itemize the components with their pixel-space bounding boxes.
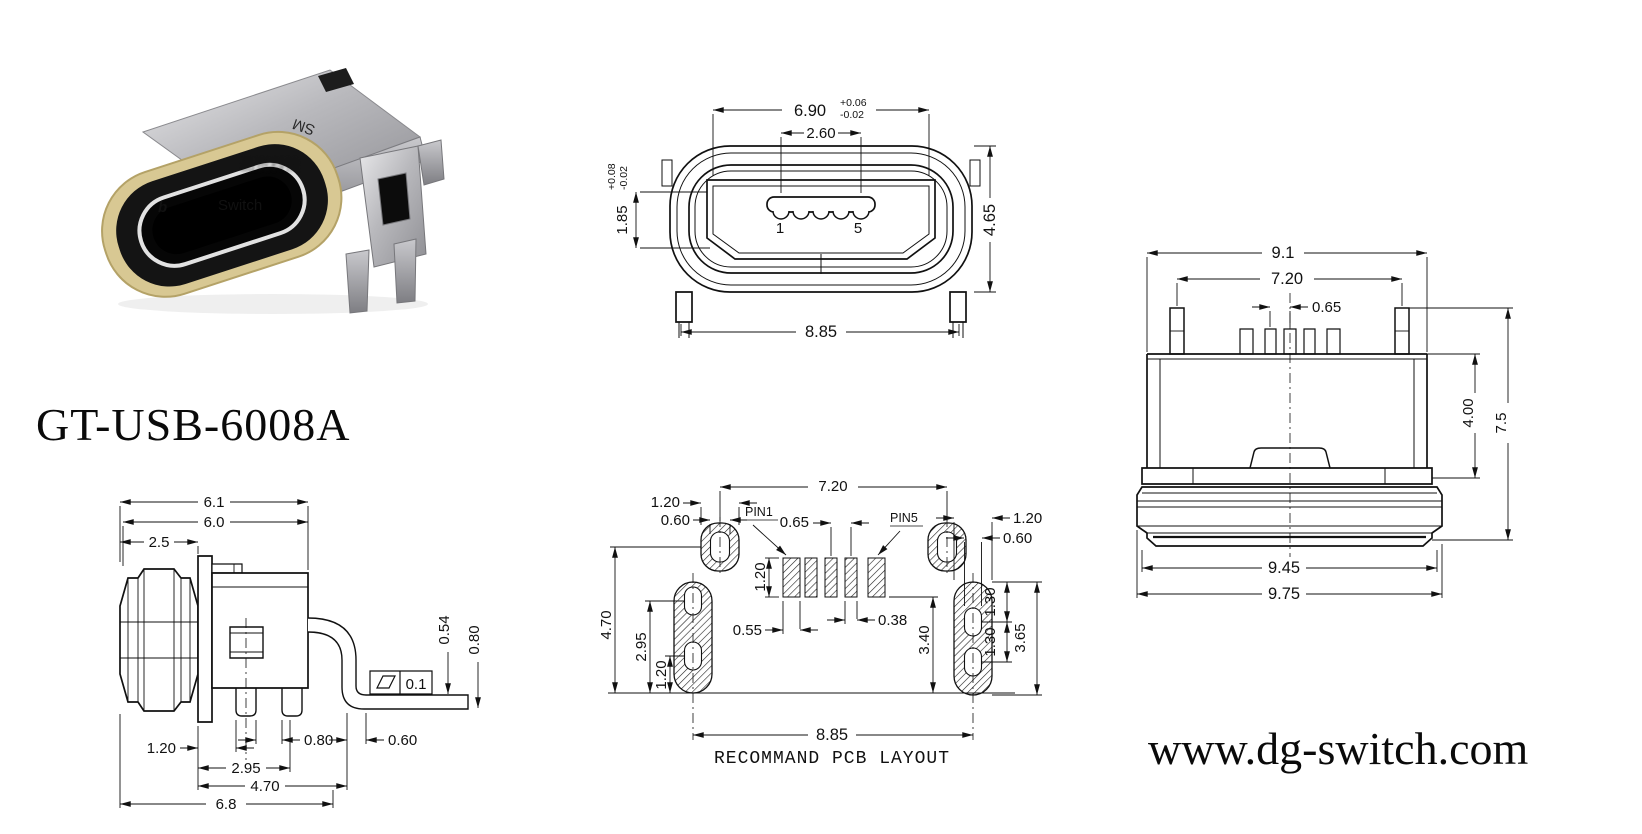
signal-pad-3 — [825, 558, 837, 597]
pin1-label: PIN1 — [745, 505, 773, 519]
dim-leg-gap: 0.80 — [304, 732, 333, 749]
dim-height: 4.65 — [981, 204, 999, 236]
dim-post-span: 7.20 — [1271, 270, 1303, 288]
dim-ring-to-base: 4.70 — [598, 610, 615, 639]
dim-opening-tol-dn: -0.02 — [618, 166, 630, 190]
dim-ring-inner: 0.60 — [661, 512, 690, 529]
dim-leg2-pos: 2.95 — [231, 760, 260, 777]
dim-hole1-to-base: 2.95 — [633, 632, 650, 661]
pin5-label: PIN5 — [890, 511, 918, 525]
signal-pad-4 — [845, 558, 857, 597]
front-view-drawing: 6.90 +0.06 -0.02 2.60 1.85 +0.08 -0.02 4… — [600, 80, 1020, 340]
pin5-number: 5 — [854, 220, 862, 237]
pcb-pads — [674, 523, 992, 695]
datasheet-page: SM b 品赞科技 Switch GT-USB-6008A — [0, 0, 1642, 834]
dim-slot-span: 8.85 — [816, 726, 848, 744]
side-view-outlines — [120, 556, 468, 760]
pin1-number: 1 — [776, 220, 784, 237]
dim-opening-tol-up: +0.08 — [606, 163, 618, 190]
dim-ring-outer: 1.20 — [651, 494, 680, 511]
website-url: www.dg-switch.com — [1148, 722, 1528, 775]
flatness-value: 0.1 — [406, 676, 427, 693]
signal-pad-5 — [868, 558, 885, 597]
dim-pad-w2: 0.38 — [878, 612, 907, 629]
top-view-dimtext: 9.1 7.20 0.65 4.00 7.5 9.45 9.75 — [1268, 244, 1510, 603]
dim-leg-span: 8.85 — [805, 323, 837, 341]
dim-hole2-to-base: 1.20 — [653, 660, 670, 689]
dim-slot-len: 3.65 — [1012, 623, 1029, 652]
product-photo: SM b 品赞科技 Switch — [88, 40, 458, 320]
watermark-b-logo: b — [158, 199, 167, 216]
dim-body-depth: 4.00 — [1460, 398, 1477, 427]
dim-pad-w1: 0.55 — [733, 622, 762, 639]
dim-width-tol-dn: -0.02 — [840, 109, 864, 121]
dim-gasket-inner: 9.45 — [1268, 559, 1300, 577]
dim-opening: 1.85 — [614, 205, 631, 234]
dim-foot-h2: 0.80 — [466, 625, 483, 654]
dim-foot-len: 0.60 — [388, 732, 417, 749]
pcb-caption: RECOMMAND PCB LAYOUT — [714, 749, 950, 769]
dim-overall-w: 9.1 — [1272, 244, 1295, 262]
part-number: GT-USB-6008A — [36, 398, 350, 451]
top-view-outlines — [1137, 293, 1442, 557]
front-view-outlines — [662, 146, 980, 338]
dim-total-depth: 7.5 — [1493, 413, 1510, 434]
dim-slot-inner: 0.60 — [1003, 530, 1032, 547]
watermark-cn-text: 品赞科技 — [240, 157, 300, 174]
dim-gasket-outer: 9.75 — [1268, 585, 1300, 603]
signal-pad-1 — [783, 558, 800, 597]
pcb-layout-drawing: 7.20 1.20 0.60 PIN1 PIN5 0.65 1.20 0.55 … — [560, 435, 1060, 795]
top-view-drawing: 9.1 7.20 0.65 4.00 7.5 9.45 9.75 — [1080, 235, 1580, 635]
signal-pad-2 — [805, 558, 817, 597]
watermark-switch-text: Switch — [218, 197, 262, 214]
dim-foot-h1: 0.54 — [436, 615, 453, 644]
dim-width: 6.90 — [794, 102, 826, 120]
dim-total-w: 6.1 — [204, 494, 225, 511]
dim-lead-pos: 4.70 — [250, 778, 279, 795]
dim-slot-seg2: 1.30 — [982, 627, 999, 656]
dim-pad-to-base: 3.40 — [916, 625, 933, 654]
side-view-drawing: 6.1 6.0 2.5 0.1 0.54 0.80 1.20 0.80 2.95… — [40, 460, 480, 810]
dim-width-tol-up: +0.06 — [840, 97, 867, 109]
dim-body-w: 6.0 — [204, 514, 225, 531]
dim-pitch: 0.65 — [780, 514, 809, 531]
dim-overall: 6.8 — [216, 796, 237, 813]
dim-slot-outer: 1.20 — [1013, 510, 1042, 527]
dim-slot-seg1: 1.30 — [982, 587, 999, 616]
dim-tongue: 2.60 — [806, 125, 835, 142]
solder-legs — [346, 140, 444, 313]
dim-leg-offset: 1.20 — [147, 740, 176, 757]
dim-ring-span: 7.20 — [818, 478, 847, 495]
dim-gasket-w: 2.5 — [149, 534, 170, 551]
dim-pad-h: 1.20 — [752, 562, 769, 591]
dim-pitch: 0.65 — [1312, 299, 1341, 316]
